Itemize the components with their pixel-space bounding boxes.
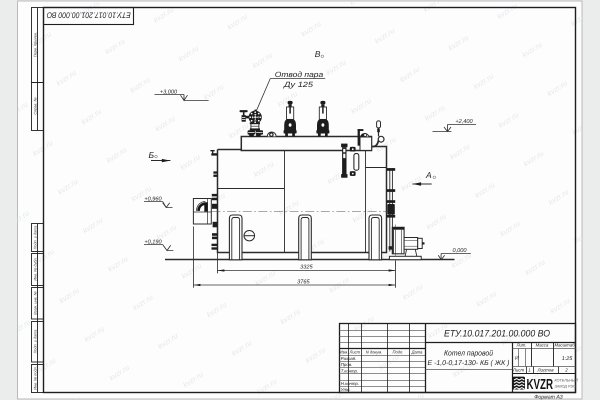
svg-text:3325: 3325 bbox=[300, 264, 313, 270]
svg-text:Листов: Листов bbox=[537, 368, 555, 373]
svg-text:+2,400: +2,400 bbox=[455, 119, 473, 125]
svg-text:Инв. № дубл.: Инв. № дубл. bbox=[33, 257, 37, 280]
svg-text:Взам. инв. №: Взам. инв. № bbox=[33, 291, 37, 314]
svg-text:+0,190: +0,190 bbox=[144, 240, 162, 246]
svg-text:Отвод пара: Отвод пара bbox=[275, 70, 324, 79]
svg-text:Утв.: Утв. bbox=[341, 387, 351, 392]
svg-text:В: В bbox=[315, 49, 321, 59]
svg-text:Масса: Масса bbox=[536, 343, 549, 348]
svg-text:И: И bbox=[515, 356, 519, 362]
svg-text:Формат А3: Формат А3 bbox=[534, 395, 562, 400]
svg-text:А: А bbox=[425, 170, 432, 180]
svg-text:3765: 3765 bbox=[297, 279, 310, 285]
svg-text:0,000: 0,000 bbox=[453, 248, 468, 254]
svg-text:Н.контр.: Н.контр. bbox=[341, 381, 359, 386]
svg-text:1:25: 1:25 bbox=[562, 356, 573, 362]
svg-text:Лит.: Лит. bbox=[515, 343, 526, 348]
svg-text:Ду 125: Ду 125 bbox=[283, 80, 314, 89]
svg-text:КОТЕЛЬНЫЙ: КОТЕЛЬНЫЙ bbox=[555, 378, 579, 383]
svg-text:ЕТУ.10.017.201.00.000 ВО: ЕТУ.10.017.201.00.000 ВО bbox=[47, 10, 131, 19]
svg-text:Котел паровой: Котел паровой bbox=[444, 348, 494, 357]
svg-text:Подп. и дата: Подп. и дата bbox=[33, 330, 37, 354]
svg-text:Пров.: Пров. bbox=[341, 362, 352, 367]
svg-text:Лист: Лист bbox=[512, 368, 525, 373]
svg-text:Инв. № подл.: Инв. № подл. bbox=[33, 366, 37, 390]
svg-text:Дата: Дата bbox=[411, 350, 424, 355]
svg-text:Перв. примен.: Перв. примен. bbox=[33, 32, 37, 57]
svg-text:+3,000: +3,000 bbox=[160, 89, 178, 95]
svg-text:+0,960: +0,960 bbox=[144, 197, 162, 203]
svg-text:KVZR: KVZR bbox=[527, 377, 554, 393]
svg-text:Подп.: Подп. bbox=[393, 350, 404, 355]
svg-text:Разраб.: Разраб. bbox=[341, 356, 357, 361]
svg-text:N докум.: N докум. bbox=[366, 350, 383, 355]
svg-text:ЗАВОД РЭП: ЗАВОД РЭП bbox=[555, 384, 576, 388]
svg-text:ЕТУ.10.017.201.00.000 ВО: ЕТУ.10.017.201.00.000 ВО bbox=[444, 329, 551, 340]
svg-text:Т.контр.: Т.контр. bbox=[341, 368, 358, 373]
svg-text:Изм.: Изм. bbox=[340, 350, 349, 355]
svg-text:2: 2 bbox=[564, 368, 568, 373]
svg-text:Б: Б bbox=[149, 150, 155, 160]
svg-text:Подп. и дата: Подп. и дата bbox=[33, 226, 37, 250]
svg-text:Масштаб: Масштаб bbox=[554, 343, 575, 348]
svg-text:Справ. №: Справ. № bbox=[33, 97, 37, 114]
svg-text:Лист: Лист bbox=[349, 350, 361, 355]
svg-text:Е -1,0-0,17-130- КБ ( ЖК ): Е -1,0-0,17-130- КБ ( ЖК ) bbox=[428, 359, 510, 367]
